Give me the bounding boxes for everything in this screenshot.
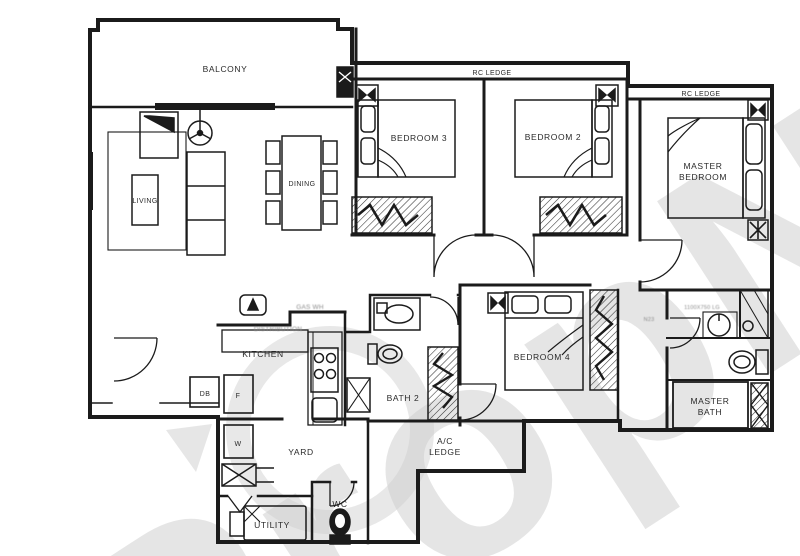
balcony-sliding-door <box>155 103 275 110</box>
gas-wh-annotation: GAS WH <box>296 304 324 311</box>
balcony-label: BALCONY <box>203 64 248 74</box>
gas-water-heater-icon <box>240 295 266 315</box>
floorplan-drawing: PropNex <box>0 0 800 556</box>
bedroom4-wardrobe-right <box>590 290 618 390</box>
rc-ledge-left-label: RC LEDGE <box>473 70 512 77</box>
master-bath-label-1: MASTER <box>690 396 729 406</box>
living-window <box>88 152 93 210</box>
bath2-label: BATH 2 <box>387 393 420 403</box>
washer-label: W <box>234 441 241 448</box>
fridge-label: F <box>236 393 241 400</box>
bedroom4-label: BEDROOM 4 <box>514 352 570 362</box>
bedroom2-label: BEDROOM 2 <box>525 132 581 142</box>
vanity-annotation: 1100X750 LG <box>684 305 720 311</box>
yard-label: YARD <box>288 447 313 457</box>
watermark: PropNex <box>11 0 800 556</box>
kitchen-label: KITCHEN <box>242 349 284 359</box>
floorplan-page: PropNex <box>0 0 800 556</box>
wc-label: WC <box>332 499 347 509</box>
kitchen-annotation: DISTRIBUTION <box>254 326 302 333</box>
corridor-annotation: N23 <box>644 317 655 323</box>
aircon-unit-bedroom2 <box>596 85 618 106</box>
ac-ledge-label-2: LEDGE <box>429 447 461 457</box>
db-label: DB <box>200 391 211 398</box>
tv-console <box>140 112 178 158</box>
master-bedroom-label-2: BEDROOM <box>679 172 727 182</box>
wc-toilet <box>330 509 350 544</box>
living-label: LIVING <box>132 198 157 205</box>
sofa <box>187 152 225 255</box>
bedroom3-label: BEDROOM 3 <box>391 133 447 143</box>
bedroom4-wardrobe-left <box>428 347 458 420</box>
utility-label: UTILITY <box>254 520 290 530</box>
entrance-door <box>114 338 157 381</box>
master-bath-label-2: BATH <box>698 407 722 417</box>
rc-ledge-right-label: RC LEDGE <box>682 91 721 98</box>
master-bedroom-label-1: MASTER <box>683 161 722 171</box>
ac-ledge-label-1: A/C <box>437 436 453 446</box>
living-rug <box>108 132 186 250</box>
balcony-corner-unit <box>337 67 353 97</box>
bedroom2-wardrobe <box>540 197 622 233</box>
aircon-unit-bedroom3 <box>356 85 378 106</box>
bedroom3-wardrobe <box>352 197 432 233</box>
ceiling-fan-icon <box>188 107 212 145</box>
watermark-text: PropNex <box>11 0 800 556</box>
dining-label: DINING <box>289 181 316 188</box>
master-bath-shaft <box>751 383 768 428</box>
